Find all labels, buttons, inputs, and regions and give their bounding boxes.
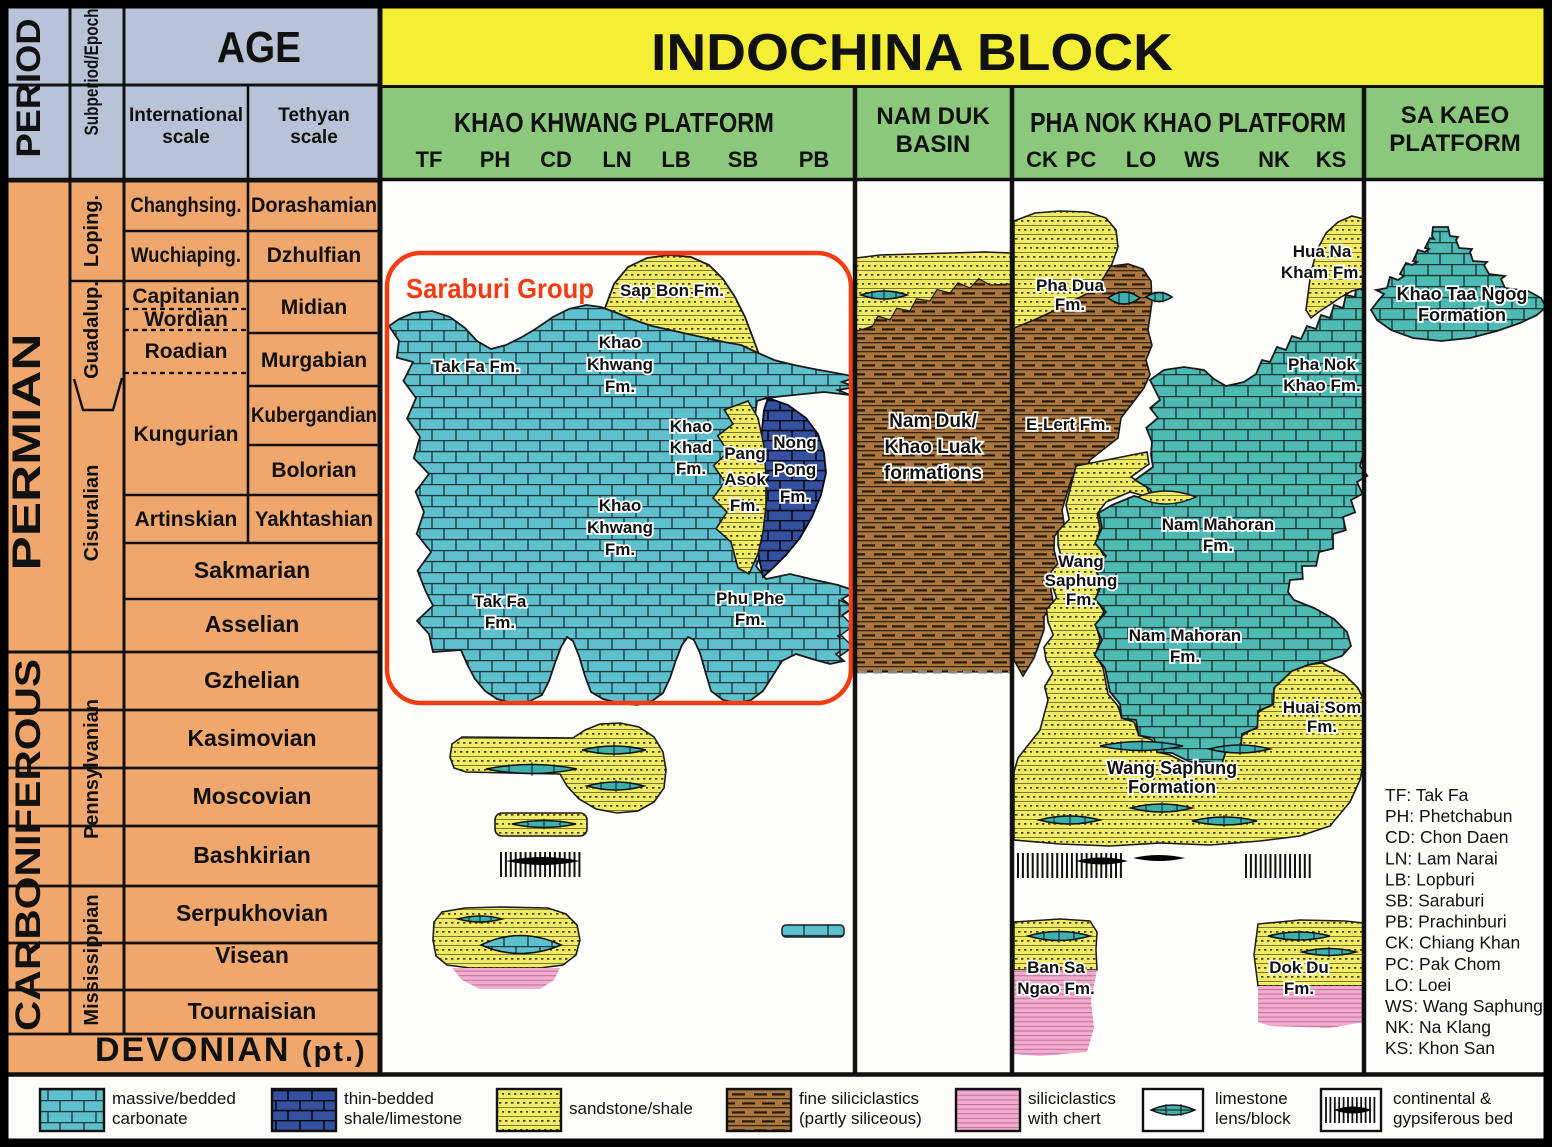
- svg-text:International: International: [129, 105, 243, 126]
- svg-text:LB: LB: [661, 147, 690, 172]
- svg-text:KHAO KHWANG PLATFORM: KHAO KHWANG PLATFORM: [454, 107, 774, 138]
- svg-text:Fm.: Fm.: [485, 613, 515, 632]
- svg-text:PERIOD: PERIOD: [10, 19, 48, 158]
- svg-text:Bashkirian: Bashkirian: [193, 842, 311, 868]
- svg-text:(partly siliceous): (partly siliceous): [799, 1109, 922, 1128]
- svg-text:fine siliciclastics: fine siliciclastics: [799, 1089, 919, 1108]
- svg-text:thin-bedded: thin-bedded: [344, 1089, 434, 1108]
- svg-text:Tournaisian: Tournaisian: [188, 998, 317, 1024]
- svg-text:Khwang: Khwang: [587, 355, 653, 374]
- svg-text:limestone: limestone: [1215, 1089, 1288, 1108]
- svg-text:INDOCHINA BLOCK: INDOCHINA BLOCK: [651, 24, 1173, 82]
- svg-text:WS: Wang Saphung: WS: Wang Saphung: [1385, 996, 1543, 1016]
- svg-text:Khao Fm.: Khao Fm.: [1283, 376, 1360, 395]
- svg-text:Serpukhovian: Serpukhovian: [176, 900, 328, 926]
- svg-text:Tak Fa: Tak Fa: [474, 592, 527, 611]
- svg-text:KS: KS: [1316, 147, 1347, 172]
- svg-text:Loping.: Loping.: [81, 195, 103, 267]
- svg-text:Khao Luak: Khao Luak: [884, 437, 982, 458]
- svg-text:Visean: Visean: [215, 942, 289, 968]
- svg-text:Asselian: Asselian: [205, 611, 300, 637]
- svg-text:Nong: Nong: [773, 433, 816, 452]
- svg-text:PH: PH: [480, 147, 511, 172]
- svg-text:Fm.: Fm.: [1055, 295, 1085, 314]
- svg-text:WS: WS: [1184, 147, 1219, 172]
- svg-text:sandstone/shale: sandstone/shale: [569, 1099, 693, 1118]
- svg-text:CK: Chiang Khan: CK: Chiang Khan: [1385, 933, 1520, 953]
- svg-text:Formation: Formation: [1418, 305, 1506, 325]
- svg-text:Bolorian: Bolorian: [271, 459, 356, 482]
- svg-text:Fm.: Fm.: [676, 459, 706, 478]
- svg-text:Khao: Khao: [599, 333, 642, 352]
- svg-text:Khao: Khao: [670, 417, 713, 436]
- svg-text:Fm.: Fm.: [1284, 979, 1314, 998]
- svg-text:NK: NK: [1258, 147, 1290, 172]
- svg-text:Khad: Khad: [670, 438, 713, 457]
- svg-text:CK: CK: [1026, 147, 1058, 172]
- svg-text:Wang Saphung: Wang Saphung: [1107, 758, 1237, 778]
- svg-text:CD: Chon Daen: CD: Chon Daen: [1385, 827, 1509, 847]
- svg-text:Khwang: Khwang: [587, 518, 653, 537]
- svg-text:PLATFORM: PLATFORM: [1389, 130, 1521, 157]
- svg-text:Fm.: Fm.: [1203, 536, 1233, 555]
- svg-text:NAM DUK: NAM DUK: [876, 103, 990, 130]
- svg-text:lens/block: lens/block: [1215, 1109, 1291, 1128]
- svg-text:Khao Taa Ngog: Khao Taa Ngog: [1397, 284, 1528, 304]
- svg-text:SB: Saraburi: SB: Saraburi: [1385, 891, 1484, 911]
- svg-text:with chert: with chert: [1027, 1109, 1101, 1128]
- svg-text:SB: SB: [728, 147, 759, 172]
- svg-text:Kubergandian: Kubergandian: [251, 404, 377, 427]
- svg-text:Ban Sa: Ban Sa: [1027, 958, 1085, 977]
- svg-text:Sap Bon Fm.: Sap Bon Fm.: [620, 281, 724, 300]
- svg-text:Saphung: Saphung: [1045, 571, 1118, 590]
- svg-text:scale: scale: [290, 127, 338, 148]
- svg-text:Guadalup.: Guadalup.: [81, 281, 103, 379]
- svg-text:shale/limestone: shale/limestone: [344, 1109, 462, 1128]
- svg-text:Pha Dua: Pha Dua: [1036, 276, 1105, 295]
- svg-text:Fm.: Fm.: [780, 487, 810, 506]
- svg-text:Moscovian: Moscovian: [193, 783, 312, 809]
- svg-text:Dzhulfian: Dzhulfian: [267, 244, 362, 267]
- svg-text:Asok: Asok: [724, 470, 766, 489]
- svg-text:continental &: continental &: [1393, 1089, 1492, 1108]
- svg-text:CD: CD: [540, 147, 572, 172]
- svg-text:Saraburi Group: Saraburi Group: [406, 273, 594, 304]
- svg-text:Tak Fa Fm.: Tak Fa Fm.: [432, 357, 520, 376]
- svg-text:Yakhtashian: Yakhtashian: [255, 508, 373, 531]
- svg-text:Roadian: Roadian: [145, 340, 228, 363]
- svg-text:Murgabian: Murgabian: [261, 349, 367, 372]
- svg-text:Nam Mahoran: Nam Mahoran: [1162, 515, 1274, 534]
- svg-text:Tethyan: Tethyan: [278, 105, 349, 126]
- svg-text:Wuchiaping.: Wuchiaping.: [131, 244, 241, 267]
- svg-text:Capitanian: Capitanian: [132, 285, 239, 308]
- svg-text:Kungurian: Kungurian: [134, 423, 239, 446]
- svg-text:PERMIAN: PERMIAN: [5, 334, 49, 571]
- svg-text:Pang: Pang: [724, 444, 766, 463]
- svg-text:PC: PC: [1066, 147, 1097, 172]
- svg-text:PH: Phetchabun: PH: Phetchabun: [1385, 806, 1512, 826]
- svg-text:Fm.: Fm.: [1066, 590, 1096, 609]
- svg-text:SA KAEO: SA KAEO: [1401, 102, 1509, 129]
- svg-text:scale: scale: [162, 127, 210, 148]
- svg-text:BASIN: BASIN: [896, 131, 971, 158]
- svg-text:Subperiod/Epoch: Subperiod/Epoch: [82, 9, 103, 136]
- svg-text:NK: Na Klang: NK: Na Klang: [1385, 1017, 1491, 1037]
- svg-text:Sakmarian: Sakmarian: [194, 557, 310, 583]
- svg-text:PC: Pak Chom: PC: Pak Chom: [1385, 954, 1501, 974]
- svg-text:LB: Lopburi: LB: Lopburi: [1385, 869, 1475, 889]
- svg-text:Fm.: Fm.: [605, 540, 635, 559]
- svg-text:Dok Du: Dok Du: [1269, 958, 1329, 977]
- svg-text:Fm.: Fm.: [1307, 717, 1337, 736]
- svg-text:Formation: Formation: [1128, 777, 1216, 797]
- svg-text:carbonate: carbonate: [112, 1109, 188, 1128]
- svg-text:LO: LO: [1126, 147, 1157, 172]
- svg-text:formations: formations: [884, 463, 982, 484]
- svg-text:Cisuralian: Cisuralian: [81, 465, 103, 562]
- svg-text:LN: LN: [602, 147, 631, 172]
- svg-text:gypsiferous bed: gypsiferous bed: [1393, 1109, 1513, 1128]
- svg-text:Nam Mahoran: Nam Mahoran: [1129, 626, 1241, 645]
- svg-text:Ngao Fm.: Ngao Fm.: [1017, 979, 1094, 998]
- svg-text:E-Lert Fm.: E-Lert Fm.: [1026, 415, 1110, 434]
- svg-text:KS: Khon San: KS: Khon San: [1385, 1038, 1495, 1058]
- svg-text:Pong: Pong: [774, 460, 817, 479]
- svg-text:TF: TF: [416, 147, 443, 172]
- svg-text:Fm.: Fm.: [605, 377, 635, 396]
- svg-text:Fm.: Fm.: [730, 496, 760, 515]
- svg-text:TF: Tak Fa: TF: Tak Fa: [1385, 785, 1469, 805]
- svg-text:Dorashamian: Dorashamian: [251, 194, 377, 217]
- svg-text:LN: Lam Narai: LN: Lam Narai: [1385, 848, 1498, 868]
- svg-text:Phu Phe: Phu Phe: [716, 589, 784, 608]
- svg-text:Gzhelian: Gzhelian: [204, 667, 300, 693]
- svg-text:DEVONIAN (pt.): DEVONIAN (pt.): [95, 1031, 367, 1069]
- svg-text:Huai Som: Huai Som: [1283, 698, 1361, 717]
- svg-text:PHA NOK KHAO PLATFORM: PHA NOK KHAO PLATFORM: [1030, 107, 1346, 138]
- svg-text:Hua Na: Hua Na: [1293, 242, 1352, 261]
- svg-text:CARBONIFEROUS: CARBONIFEROUS: [9, 659, 48, 1031]
- svg-text:massive/bedded: massive/bedded: [112, 1089, 236, 1108]
- svg-text:Kasimovian: Kasimovian: [187, 725, 316, 751]
- svg-text:AGE: AGE: [217, 23, 301, 72]
- svg-text:Midian: Midian: [281, 296, 348, 319]
- svg-text:Wang: Wang: [1058, 552, 1104, 571]
- svg-text:Nam Duk/: Nam Duk/: [889, 411, 977, 432]
- svg-text:LO: Loei: LO: Loei: [1385, 975, 1451, 995]
- svg-text:Mississippian: Mississippian: [81, 894, 103, 1025]
- svg-text:PB: Prachinburi: PB: Prachinburi: [1385, 912, 1507, 932]
- svg-text:Khao: Khao: [599, 496, 642, 515]
- svg-text:Fm.: Fm.: [735, 610, 765, 629]
- svg-text:Pha Nok: Pha Nok: [1288, 355, 1357, 374]
- svg-text:Wordian: Wordian: [144, 308, 228, 331]
- svg-text:Kham Fm.: Kham Fm.: [1281, 263, 1363, 282]
- svg-text:PB: PB: [799, 147, 830, 172]
- svg-text:Fm.: Fm.: [1170, 647, 1200, 666]
- svg-text:Pennsylvanian: Pennsylvanian: [81, 699, 103, 839]
- svg-text:siliciclastics: siliciclastics: [1028, 1089, 1116, 1108]
- svg-text:Changhsing.: Changhsing.: [131, 194, 242, 217]
- svg-text:Artinskian: Artinskian: [135, 508, 238, 531]
